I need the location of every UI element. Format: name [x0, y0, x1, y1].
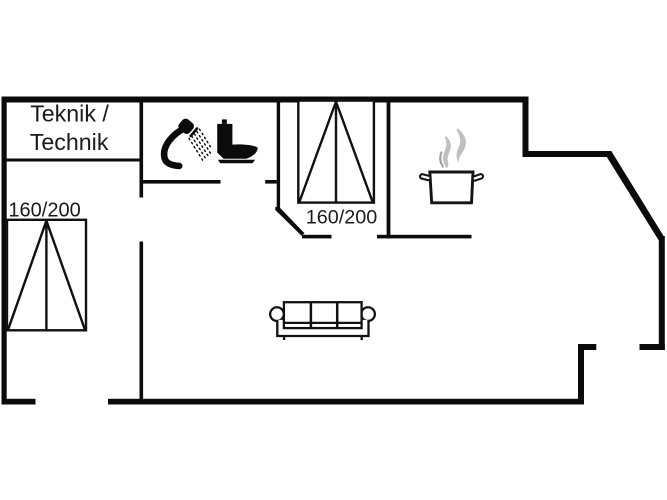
svg-text:160/200: 160/200	[306, 207, 378, 229]
svg-text:160/200: 160/200	[8, 200, 80, 222]
svg-text:Technik: Technik	[30, 129, 109, 155]
svg-text:Teknik /: Teknik /	[30, 100, 109, 126]
